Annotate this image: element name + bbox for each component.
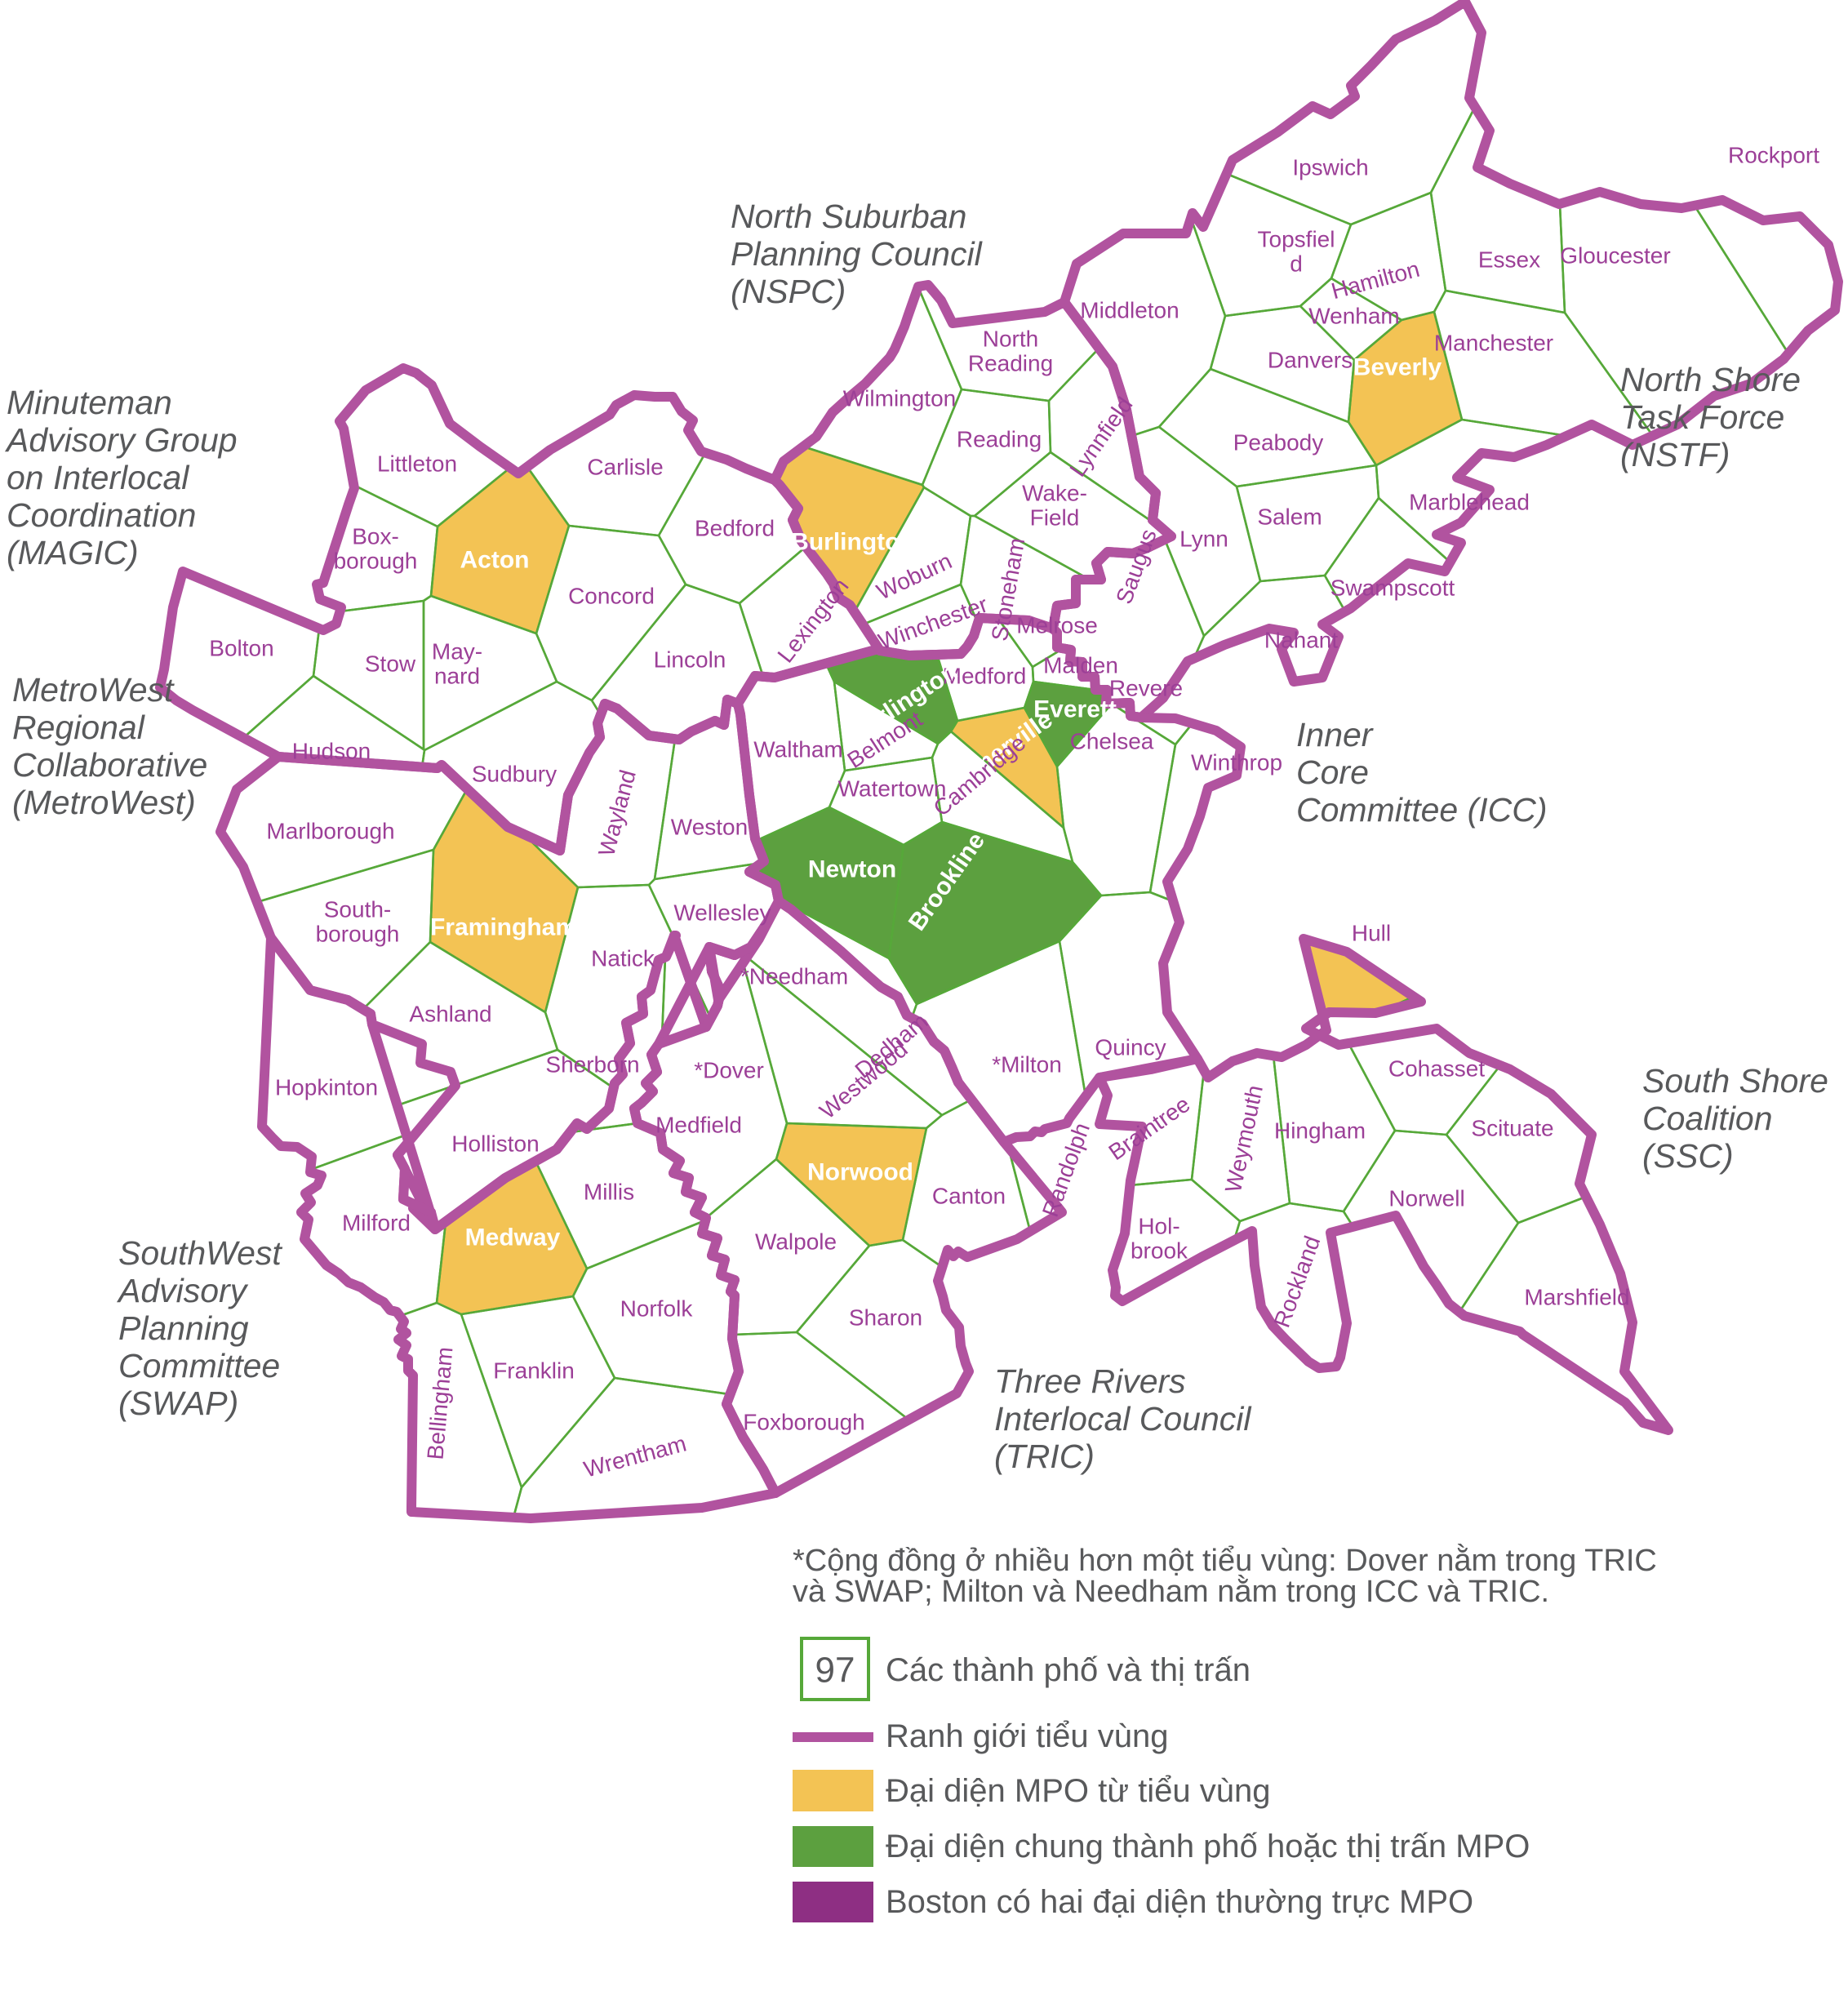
svg-text:Quincy: Quincy — [1095, 1035, 1166, 1060]
svg-text:Core: Core — [1296, 753, 1369, 791]
svg-text:Concord: Concord — [568, 584, 655, 609]
svg-text:Canton: Canton — [932, 1184, 1006, 1209]
svg-text:Interlocal Council: Interlocal Council — [994, 1400, 1252, 1438]
svg-text:Marlborough: Marlborough — [266, 819, 394, 844]
svg-text:Foxborough: Foxborough — [743, 1410, 864, 1435]
svg-text:Advisory Group: Advisory Group — [4, 421, 238, 459]
svg-text:Planning Council: Planning Council — [731, 235, 984, 273]
svg-text:Marshfield: Marshfield — [1524, 1285, 1629, 1310]
svg-text:Natick: Natick — [591, 946, 655, 971]
svg-text:Sharon: Sharon — [849, 1305, 922, 1331]
svg-text:borough: borough — [316, 922, 400, 947]
svg-text:Rockport: Rockport — [1728, 143, 1819, 168]
svg-text:Ipswich: Ipswich — [1292, 155, 1368, 180]
svg-text:(MetroWest): (MetroWest) — [12, 784, 196, 821]
svg-text:Watertown: Watertown — [838, 776, 947, 802]
svg-text:Committee: Committee — [118, 1347, 280, 1384]
svg-text:Đại diện MPO từ tiểu vùng: Đại diện MPO từ tiểu vùng — [886, 1773, 1270, 1809]
svg-text:Reading: Reading — [968, 351, 1053, 376]
svg-text:Milford: Milford — [342, 1211, 411, 1236]
svg-text:SouthWest: SouthWest — [118, 1234, 282, 1272]
svg-text:Waltham: Waltham — [753, 737, 842, 762]
svg-text:(NSTF): (NSTF) — [1620, 436, 1730, 473]
svg-text:Scituate: Scituate — [1471, 1116, 1553, 1141]
svg-text:Gloucester: Gloucester — [1560, 243, 1670, 269]
svg-text:Holliston: Holliston — [451, 1131, 539, 1157]
svg-text:Framingham: Framingham — [430, 914, 577, 941]
svg-text:Stow: Stow — [365, 651, 416, 677]
svg-text:Chelsea: Chelsea — [1070, 729, 1154, 754]
svg-text:Manchester: Manchester — [1434, 331, 1553, 356]
svg-text:Box-: Box- — [352, 524, 399, 549]
svg-text:May-: May- — [432, 639, 482, 664]
svg-text:Revere: Revere — [1109, 676, 1183, 701]
svg-text:Planning: Planning — [118, 1309, 249, 1347]
svg-text:và SWAP; Milton và Needham nằm: và SWAP; Milton và Needham nằm trong ICC… — [793, 1574, 1549, 1609]
svg-text:Weston: Weston — [671, 815, 748, 840]
svg-text:*Milton: *Milton — [992, 1052, 1062, 1078]
svg-text:(TRIC): (TRIC) — [994, 1438, 1095, 1475]
svg-text:Danvers: Danvers — [1268, 348, 1353, 373]
svg-text:Task Force: Task Force — [1620, 398, 1784, 436]
svg-text:Walpole: Walpole — [755, 1229, 837, 1255]
svg-text:*Dover: *Dover — [694, 1058, 764, 1083]
svg-text:Wellesley: Wellesley — [673, 900, 771, 926]
svg-text:d: d — [1290, 251, 1303, 277]
svg-text:Reading: Reading — [957, 427, 1042, 452]
svg-text:nard: nard — [434, 664, 480, 689]
svg-text:Hingham: Hingham — [1274, 1118, 1366, 1144]
svg-text:*Needham: *Needham — [740, 964, 848, 989]
svg-text:Salem: Salem — [1257, 504, 1322, 530]
svg-text:Swampscott: Swampscott — [1330, 576, 1455, 601]
svg-text:Nahant: Nahant — [1264, 628, 1339, 653]
svg-text:Norfolk: Norfolk — [620, 1296, 694, 1322]
svg-text:South Shore: South Shore — [1642, 1062, 1828, 1100]
svg-text:(MAGIC): (MAGIC) — [7, 534, 139, 571]
svg-text:North: North — [983, 327, 1038, 352]
svg-text:(SSC): (SSC) — [1642, 1137, 1734, 1175]
svg-text:Peabody: Peabody — [1233, 430, 1324, 456]
svg-text:Inner: Inner — [1296, 716, 1375, 753]
svg-text:Ashland: Ashland — [409, 1002, 491, 1027]
svg-text:Sudbury: Sudbury — [472, 762, 557, 787]
svg-text:Bolton: Bolton — [209, 636, 273, 661]
svg-text:Lincoln: Lincoln — [654, 647, 726, 673]
svg-text:Regional: Regional — [12, 709, 146, 746]
svg-text:Hudson: Hudson — [292, 739, 371, 764]
svg-text:Boston có hai đại diện thường: Boston có hai đại diện thường trực MPO — [886, 1884, 1473, 1920]
svg-text:Ranh giới tiểu vùng: Ranh giới tiểu vùng — [886, 1718, 1168, 1754]
svg-text:Hol-: Hol- — [1138, 1214, 1179, 1239]
svg-text:Franklin: Franklin — [493, 1358, 575, 1384]
svg-text:borough: borough — [334, 549, 418, 574]
svg-text:Lynn: Lynn — [1179, 527, 1228, 552]
svg-text:Middleton: Middleton — [1080, 298, 1179, 323]
svg-text:MetroWest: MetroWest — [12, 671, 175, 709]
svg-text:Newton: Newton — [808, 856, 896, 883]
svg-text:Hopkinton: Hopkinton — [275, 1075, 378, 1100]
svg-text:brook: brook — [1131, 1238, 1188, 1264]
svg-text:97: 97 — [815, 1651, 855, 1691]
svg-text:Norwood: Norwood — [807, 1159, 913, 1186]
svg-text:Coordination: Coordination — [7, 496, 197, 534]
svg-text:Melrose: Melrose — [1016, 613, 1098, 638]
svg-text:Committee (ICC): Committee (ICC) — [1296, 791, 1548, 829]
svg-text:Norwell: Norwell — [1388, 1186, 1464, 1211]
svg-text:Field: Field — [1030, 505, 1080, 531]
svg-text:Medfield: Medfield — [655, 1113, 742, 1138]
svg-text:Beverly: Beverly — [1353, 354, 1442, 381]
svg-text:Winthrop: Winthrop — [1191, 750, 1282, 776]
svg-text:Advisory: Advisory — [116, 1272, 249, 1309]
svg-text:South-: South- — [324, 897, 392, 922]
svg-text:Collaborative: Collaborative — [12, 746, 207, 784]
svg-text:Essex: Essex — [1478, 247, 1540, 273]
svg-text:Carlisle: Carlisle — [587, 455, 663, 480]
svg-text:(SWAP): (SWAP) — [118, 1384, 238, 1422]
svg-text:Cohasset: Cohasset — [1388, 1056, 1486, 1082]
svg-text:on Interlocal: on Interlocal — [7, 459, 190, 496]
svg-text:Wenham: Wenham — [1308, 304, 1400, 329]
svg-text:Hull: Hull — [1352, 921, 1391, 946]
svg-text:Burlington: Burlington — [791, 529, 915, 556]
svg-text:Acton: Acton — [460, 547, 530, 574]
svg-text:Wilmington: Wilmington — [843, 386, 956, 411]
svg-text:Three Rivers: Three Rivers — [994, 1362, 1186, 1400]
svg-text:Marblehead: Marblehead — [1409, 490, 1530, 515]
svg-text:Bedford: Bedford — [695, 516, 775, 541]
svg-text:North Shore: North Shore — [1620, 361, 1801, 398]
svg-text:Sherborn: Sherborn — [545, 1052, 639, 1078]
svg-text:(NSPC): (NSPC) — [731, 273, 846, 310]
svg-text:*Cộng đồng ở nhiều hơn một tiể: *Cộng đồng ở nhiều hơn một tiểu vùng: Do… — [793, 1543, 1657, 1578]
svg-text:Millis: Millis — [584, 1180, 634, 1205]
svg-text:Littleton: Littleton — [377, 451, 457, 477]
svg-text:Topsfiel: Topsfiel — [1258, 227, 1335, 252]
svg-text:North Suburban: North Suburban — [731, 198, 966, 235]
svg-text:Coalition: Coalition — [1642, 1100, 1773, 1137]
svg-text:Wake-: Wake- — [1022, 481, 1087, 506]
svg-text:Minuteman: Minuteman — [7, 384, 172, 421]
svg-text:Các thành phố và thị trấn: Các thành phố và thị trấn — [886, 1652, 1251, 1688]
svg-text:Malden: Malden — [1043, 653, 1118, 678]
svg-text:Medway: Medway — [465, 1224, 561, 1251]
svg-text:Đại diện chung thành phố hoặc: Đại diện chung thành phố hoặc thị trấn M… — [886, 1829, 1530, 1864]
